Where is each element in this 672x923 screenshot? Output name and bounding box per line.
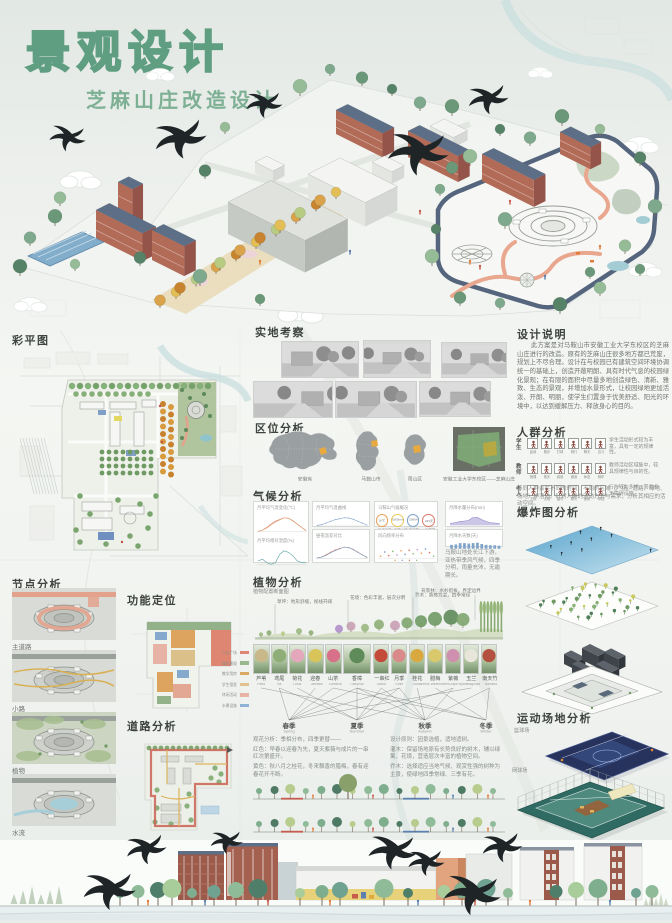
activity-figure-icon <box>568 463 579 474</box>
survey-photo-grid <box>253 337 505 419</box>
climate-temp-title: 月平均气温变化(℃) <box>257 504 294 510</box>
activity-caption: 打球 <box>557 449 564 454</box>
survey-photo <box>281 341 359 378</box>
crowd-group-label: 教师 <box>516 464 525 476</box>
legend-row: 教学用房 <box>222 669 252 678</box>
plant-item: 芦苇Reed <box>253 644 270 689</box>
activity-figure-icon <box>568 438 579 449</box>
climate-range-title: 昼夜温差对比 <box>316 532 354 538</box>
climate-bar-title: 月降水天数(天) <box>449 532 487 538</box>
tree-icon <box>13 259 27 276</box>
province-map <box>349 429 387 473</box>
plants-note: 灌木：保留场地原有长势良好的树木，辅以绿篱、花境，营造层次丰富的植物空间。 <box>390 747 504 762</box>
section-description-heading: 设计说明 <box>517 326 567 342</box>
plant-latin-name: Nandina <box>484 683 493 686</box>
tree-icon <box>594 282 606 296</box>
exploded-layer-water <box>526 526 658 574</box>
plant-name: 鸢尾 <box>272 674 286 682</box>
activity-caption: 健身 <box>570 474 577 479</box>
legend-swatch <box>240 661 249 665</box>
season-node-row: 春季Spring夏季Summer秋季Autumn冬季Winter <box>253 720 505 734</box>
tree-icon <box>220 122 230 134</box>
legend-row: 绿化景观 <box>222 659 252 668</box>
activity-cell: 自习 <box>595 438 607 458</box>
swallow-icon <box>467 85 509 116</box>
plant-photo <box>463 644 480 674</box>
legend-swatch <box>240 683 249 687</box>
legend-row: 学生宿舍 <box>222 680 252 689</box>
cloud-icon <box>146 68 175 81</box>
climate-card-area: 月降水量分布(mm) <box>445 501 503 527</box>
activity-figure-icon <box>527 438 538 449</box>
activity-figure-icon <box>581 463 592 474</box>
activity-caption: 授课 <box>530 474 537 479</box>
tree-icon <box>54 192 66 206</box>
map-label-province: 安徽省 <box>281 475 329 482</box>
activity-caption: 休息 <box>584 474 591 479</box>
activity-cell: 健身 <box>568 463 580 483</box>
activity-cell: 聊天 <box>581 438 593 458</box>
plant-item: 鸢尾Iris <box>271 644 288 689</box>
season-node: 春季Spring <box>280 720 297 736</box>
plant-item: 一串红Salvia <box>373 644 390 689</box>
plants-note: 设计原则：因景选植，适地适树。 <box>390 737 504 745</box>
plant-name: 一串红 <box>374 674 388 682</box>
activity-caption: 自习 <box>598 449 605 454</box>
plant-latin-name: Osmanthus <box>412 683 421 686</box>
activity-figure-icon <box>554 463 565 474</box>
plant-name: 迎春 <box>308 674 322 682</box>
plant-photo <box>481 644 498 674</box>
plant-name: 腊梅 <box>428 674 442 682</box>
plant-latin-name: Camphor <box>349 683 364 686</box>
plant-photo <box>253 644 270 674</box>
survey-photo <box>441 342 507 378</box>
plant-photo <box>445 644 462 674</box>
plant-name: 芦苇 <box>254 674 268 682</box>
climate-card-wind: 风向频率分布 <box>374 529 438 563</box>
survey-photo <box>419 381 491 417</box>
plant-name: 荷花 <box>290 674 304 682</box>
climate-wind-title: 风向频率分布 <box>378 532 420 538</box>
activity-caption: 跑步 <box>543 449 550 454</box>
china-map <box>261 427 343 473</box>
activity-caption: 骑行 <box>570 449 577 454</box>
survey-photo <box>335 381 417 418</box>
node-card-main-road <box>12 588 116 640</box>
plant-latin-name: Camellia <box>329 683 338 686</box>
activity-caption: 阅读 <box>557 474 564 479</box>
climate-area-title: 月降水量分布(mm) <box>449 504 487 510</box>
legend-label: 入口广场 <box>222 650 238 656</box>
legend-row: 水景设施 <box>222 701 252 710</box>
legend-label: 学生宿舍 <box>222 681 238 687</box>
tree-icon <box>555 109 569 126</box>
poster: 景观设计 芝麻山庄改造设计 <box>0 0 672 923</box>
climate-card-temp: 月平均气温变化(℃) 月平均相对湿度(%) <box>253 501 309 563</box>
activity-figure-icon <box>554 438 565 449</box>
tree-icon <box>356 72 368 86</box>
climate-card-range: 昼夜温差对比 <box>312 529 370 563</box>
plants-note: 观花分析：季相分布，四季更替—— <box>253 737 373 745</box>
season-name: 夏季 <box>346 720 369 730</box>
season-name: 秋季 <box>415 720 436 730</box>
design-description-text: 此方案是对马鞍山市安徽工业大学东校区的芝麻山庄进行的改造。原有的芝麻山庄很多地方… <box>517 342 669 412</box>
crowd-row: 学生晨读跑步打球骑行聊天自习学生活动形式较为丰富，具有一定的规律性。 <box>516 438 672 461</box>
plant-latin-name: Lotus <box>293 683 302 686</box>
plant-photo-strip: 芦苇Reed鸢尾Iris荷花Lotus迎春Jasmine山茶Camellia香樟… <box>253 644 505 688</box>
street-elevation-strip-2 <box>253 803 505 835</box>
legend-swatch <box>240 651 249 655</box>
season-en: Winter <box>480 730 491 734</box>
plants-note: 红色：早春以迎春为先，夏天紫薇与成片的一串红次第盛开。 <box>253 747 373 762</box>
crowd-row: 教师授课散步阅读健身休息骑车教师活动区域集中，较具规律性与目的性。 <box>516 463 672 483</box>
location-maps: 安徽省 马鞍山市 雨山区 安徽工业大学东校区——芝麻山庄 <box>253 427 505 485</box>
plant-name: 紫薇 <box>446 674 460 682</box>
legend-label: 休闲活动 <box>222 692 238 698</box>
season-name: 冬季 <box>477 720 494 730</box>
climate-card-bars: 月降水天数(天) <box>445 529 503 547</box>
activity-figure-icon <box>527 463 538 474</box>
plant-item: 香樟Camphor <box>343 644 371 689</box>
season-node: 秋季Autumn <box>415 720 436 736</box>
activity-caption: 晨读 <box>530 449 537 454</box>
activity-figure-icon <box>541 463 552 474</box>
activity-figure-icon <box>595 463 606 474</box>
survey-photo <box>253 381 333 418</box>
activity-figure-icon <box>581 438 592 449</box>
legend-swatch <box>240 693 249 697</box>
plant-photo <box>271 644 288 674</box>
swallow-icon <box>153 119 210 162</box>
legend-swatch <box>240 672 249 676</box>
plant-photo <box>427 644 444 674</box>
stat-value: 233天 <box>425 518 433 523</box>
plant-latin-name: Rose <box>394 683 403 686</box>
stat-value: 16℃ <box>379 519 386 523</box>
season-name: 春季 <box>280 720 297 730</box>
plant-latin-name: Wintersweet <box>430 683 439 686</box>
plant-photo <box>307 644 324 674</box>
season-en: Spring <box>283 730 294 734</box>
plant-annotation-3: 背景林：水杉挺拔，界定边界 <box>421 587 481 594</box>
stat-value: 1060mm <box>392 519 404 522</box>
plant-item: 桂花Osmanthus <box>409 644 426 689</box>
crowd-row-note: 学生活动形式较为丰富，具有一定的规律性。 <box>609 438 661 456</box>
activity-cell: 打球 <box>554 438 566 458</box>
activity-cell: 骑行 <box>568 438 580 458</box>
plant-latin-name: Magnolia <box>466 683 475 686</box>
plant-item: 南天竹Nandina <box>481 644 498 689</box>
plant-item: 荷花Lotus <box>289 644 306 689</box>
climate-note: 马鞍山地处长江下游，亚热带季风气候，四季分明，雨量充沛，无霜期长。 <box>445 550 503 581</box>
activity-cell: 休息 <box>581 463 593 483</box>
activity-cell: 授课 <box>527 463 539 483</box>
plant-photo <box>391 644 408 674</box>
activity-figure-icon <box>541 438 552 449</box>
legend-swatch <box>240 704 249 708</box>
plant-name: 玉兰 <box>464 674 478 682</box>
plant-annotation-1: 花境：色彩丰富，层次分明 <box>350 594 406 601</box>
activity-cell: 散步 <box>541 463 553 483</box>
plant-latin-name: Reed <box>257 683 266 686</box>
plant-name: 月季 <box>392 674 406 682</box>
cloud-icon <box>60 171 101 189</box>
master-plan-drawing <box>10 346 248 564</box>
exploded-view-diagram <box>512 514 672 714</box>
plant-annotation-0: 草坪：地形舒缓，视线开阔 <box>277 598 333 605</box>
season-en: Autumn <box>418 730 431 734</box>
season-node: 冬季Winter <box>477 720 494 736</box>
node-card-plants <box>12 712 116 764</box>
climate-card-line: 月平均气温曲线 <box>312 501 370 527</box>
activity-cell: 跑步 <box>541 438 553 458</box>
tree-icon <box>325 64 335 76</box>
season-en: Summer <box>350 730 365 734</box>
climate-line-title: 月平均气温曲线 <box>316 504 354 510</box>
map-label-city: 马鞍山市 <box>347 475 395 482</box>
legend-row: 休闲活动 <box>222 690 252 699</box>
plant-photo <box>409 644 426 674</box>
node-card-water <box>12 774 116 826</box>
activity-caption: 散步 <box>543 474 550 479</box>
legend-label: 水景设施 <box>222 703 238 709</box>
stat-value: 2006h <box>409 519 417 522</box>
climate-card-stats: 马鞍山气候概况 16℃年均气温1060mm年降水量2006h年日照233天无霜期 <box>374 501 438 527</box>
activity-caption: 聊天 <box>584 449 591 454</box>
plant-latin-name: Crape Myrtle <box>448 683 457 686</box>
plant-item: 山茶Camellia <box>325 644 342 689</box>
activity-cell: 骑车 <box>595 463 607 483</box>
tree-icon <box>553 297 567 314</box>
plant-photo <box>289 644 306 674</box>
cloud-icon <box>629 263 662 277</box>
cloud-icon <box>14 298 47 312</box>
tree-icon <box>293 79 307 96</box>
swallow-icon <box>48 124 87 154</box>
plant-photo <box>373 644 390 674</box>
plant-name: 山茶 <box>326 674 340 682</box>
activity-cell: 阅读 <box>554 463 566 483</box>
district-map <box>399 432 431 470</box>
plant-latin-name: Iris <box>275 683 284 686</box>
tree-icon <box>48 209 62 226</box>
legend-row: 入口广场 <box>222 648 252 657</box>
sports-courts-diagram <box>510 722 672 842</box>
tree-icon <box>155 295 166 308</box>
plant-item: 迎春Jasmine <box>307 644 324 689</box>
plant-latin-name: Jasmine <box>311 683 320 686</box>
node-card-path <box>12 650 116 702</box>
activity-caption: 骑车 <box>598 474 605 479</box>
legend-label: 教学用房 <box>222 671 238 677</box>
survey-photo <box>363 340 431 378</box>
plant-latin-name: Salvia <box>376 683 385 686</box>
legend-label: 绿化景观 <box>222 660 238 666</box>
street-elevation-strip-1 <box>253 772 505 802</box>
cloud-icon <box>528 67 553 78</box>
satellite-image <box>453 427 505 471</box>
road-analysis-plan <box>127 730 249 834</box>
bottom-elevation-band <box>0 834 672 923</box>
satellite-caption: 安徽工业大学东校区——芝麻山庄 <box>439 475 519 482</box>
plant-name: 桂花 <box>410 674 424 682</box>
activity-figure-icon <box>595 438 606 449</box>
hero-axonometric-rendering <box>0 14 672 326</box>
activity-cell: 晨读 <box>527 438 539 458</box>
plant-photo <box>343 644 371 674</box>
plant-name: 南天竹 <box>482 674 496 682</box>
planting-section-drawing: 草坪：地形舒缓，视线开阔 花境：色彩丰富，层次分明 乔木：香樟为主，四季常绿 背… <box>253 594 505 642</box>
plant-season-network <box>253 688 505 722</box>
crowd-group-label: 学生 <box>516 439 525 451</box>
climate-humid-title: 月平均相对湿度(%) <box>257 537 294 543</box>
map-label-district: 雨山区 <box>391 475 439 482</box>
function-legend: 入口广场绿化景观教学用房学生宿舍休闲活动水景设施 <box>222 648 252 712</box>
crowd-row-note: 教师活动区域集中，较具规律性与目的性。 <box>609 463 661 475</box>
plant-name: 香樟 <box>345 674 369 682</box>
plant-photo <box>325 644 342 674</box>
tree-icon <box>24 232 36 246</box>
season-node: 夏季Summer <box>346 720 369 736</box>
climate-stats-title: 马鞍山气候概况 <box>378 504 420 510</box>
exploded-layer-vegetation <box>526 582 658 630</box>
plant-item: 月季Rose <box>391 644 408 689</box>
